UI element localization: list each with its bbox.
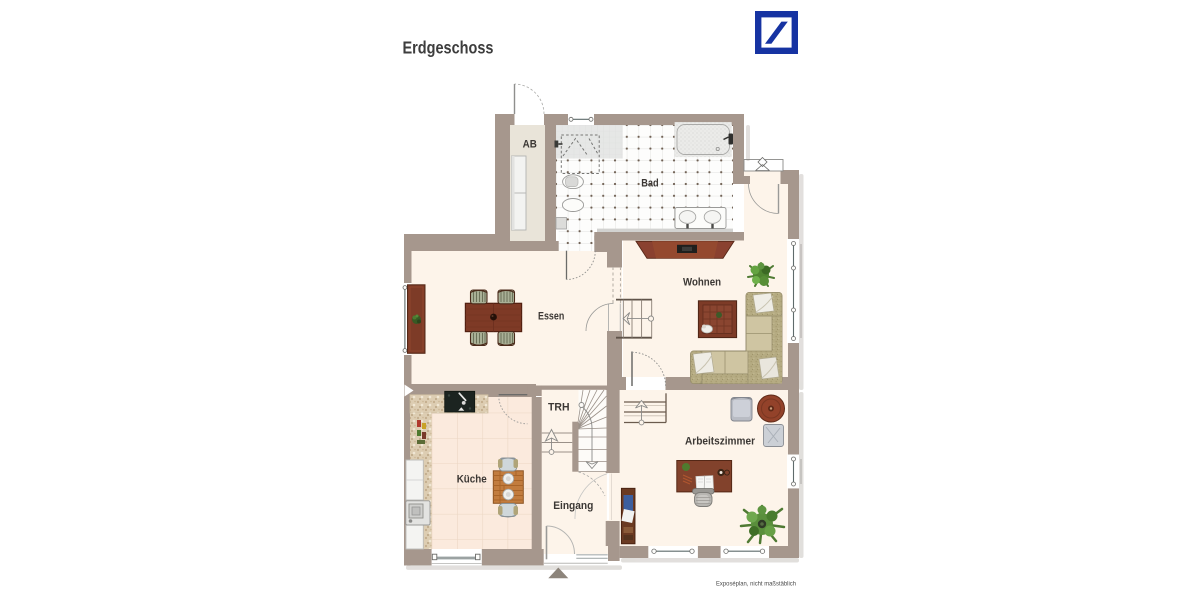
svg-text:Erdgeschoss: Erdgeschoss [403,37,494,57]
svg-text:Essen: Essen [538,311,565,323]
svg-text:Arbeitszimmer: Arbeitszimmer [685,435,756,447]
svg-text:TRH: TRH [548,402,570,414]
svg-text:Wohnen: Wohnen [683,276,721,288]
svg-text:AB: AB [523,139,537,151]
svg-text:Eingang: Eingang [553,500,593,512]
svg-text:Bad: Bad [641,177,659,189]
svg-text:Exposéplan, nicht maßstäblich: Exposéplan, nicht maßstäblich [716,581,796,588]
svg-text:Küche: Küche [457,474,487,486]
